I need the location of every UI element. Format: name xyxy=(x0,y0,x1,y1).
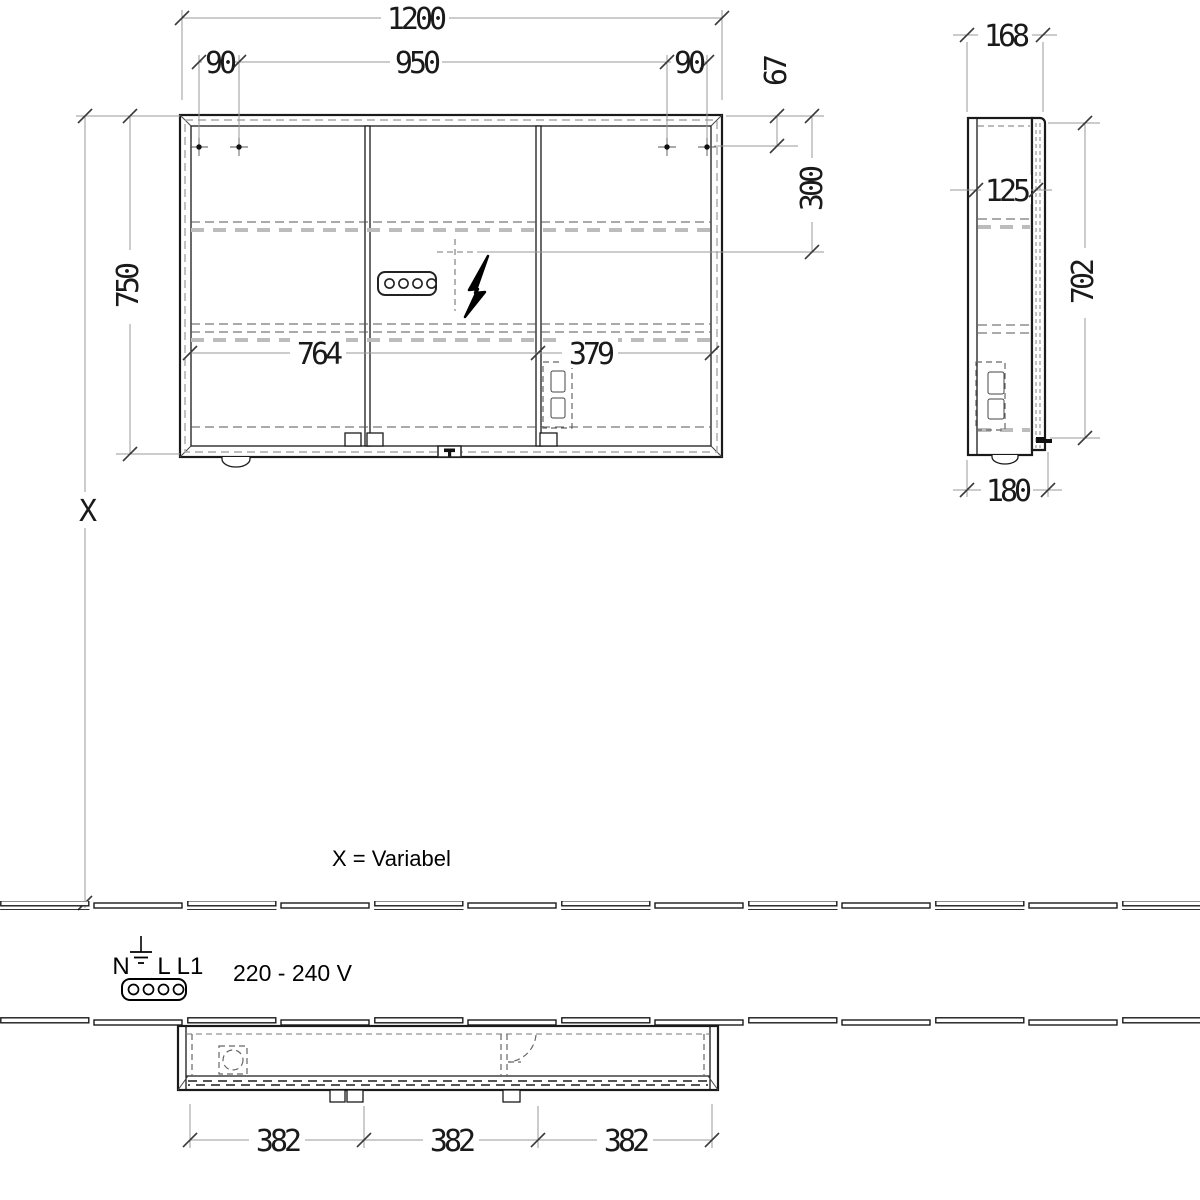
power-legend: N L L1 220 - 240 V xyxy=(112,936,352,1000)
mounting-tab xyxy=(330,1090,345,1102)
dim-right-section-label: 379 xyxy=(569,337,614,372)
terminal-n-label: N xyxy=(112,953,129,980)
front-view xyxy=(180,115,824,467)
dim-overall-width-label: 1200 xyxy=(387,2,446,37)
dim-door-height-label: 702 xyxy=(1066,260,1101,304)
mounting-tab xyxy=(503,1090,520,1102)
side-mirror-door xyxy=(1032,118,1045,450)
dim-offset-left-label: 90 xyxy=(205,46,236,81)
mounting-tab xyxy=(347,1090,363,1102)
power-outlet-icon xyxy=(378,272,436,295)
plan-view xyxy=(178,1026,718,1102)
wall-section-band-upper xyxy=(0,901,1200,910)
dim-hole-spacing-label: 950 xyxy=(395,46,440,81)
dim-offset-right-label: 90 xyxy=(674,46,705,81)
plan-view-dimensions: 382 382 382 xyxy=(183,1104,719,1159)
ground-icon xyxy=(130,936,152,963)
technical-drawing-canvas: 1200 90 950 90 67 300 750 X xyxy=(0,0,1200,1200)
terminal-l-label: L xyxy=(157,953,170,980)
voltage-label: 220 - 240 V xyxy=(233,960,353,986)
dim-inner-depth-label: 125 xyxy=(985,174,1029,209)
dim-door-2-label: 382 xyxy=(430,1124,474,1159)
door-catch xyxy=(345,433,361,446)
dim-depth-bottom-label: 180 xyxy=(986,474,1031,509)
dim-door-3-label: 382 xyxy=(604,1124,648,1159)
side-bottom-grip xyxy=(992,455,1018,464)
bottom-grip xyxy=(222,457,250,467)
side-door-damper xyxy=(1036,437,1052,443)
cable-gland-icon xyxy=(438,446,461,457)
side-view xyxy=(968,118,1052,464)
dim-depth-top-label: 168 xyxy=(984,19,1029,54)
variable-note-label: X = Variabel xyxy=(332,846,451,871)
wall-section-band-lower xyxy=(0,1017,1200,1026)
drawing-svg: 1200 90 950 90 67 300 750 X xyxy=(0,0,1200,1200)
door-divider-left xyxy=(365,126,370,446)
door-divider-right xyxy=(536,126,541,446)
dim-height-label: 750 xyxy=(111,263,146,308)
door-catch xyxy=(540,433,557,446)
terminal-l1-label: L1 xyxy=(177,953,204,980)
dim-top-to-outlet-label: 300 xyxy=(795,166,830,211)
door-catch xyxy=(367,433,383,446)
dim-top-to-holes-label: 67 xyxy=(759,56,794,86)
dim-door-1-label: 382 xyxy=(256,1124,300,1159)
power-connector-icon xyxy=(122,979,186,1000)
dim-left-section-label: 764 xyxy=(297,337,342,372)
